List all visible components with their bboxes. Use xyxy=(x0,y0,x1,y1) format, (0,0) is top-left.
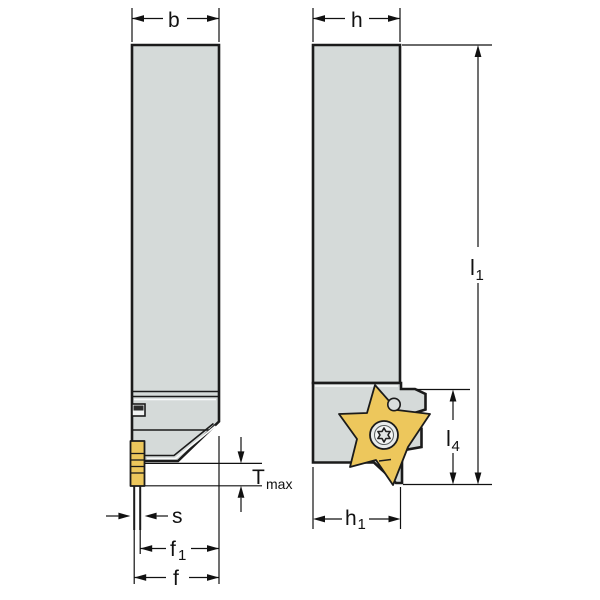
dim-label-h1-sub: 1 xyxy=(358,516,366,533)
dim-label-tmax: T xyxy=(252,466,265,489)
b-arrow-left xyxy=(132,15,144,22)
b-arrow-right xyxy=(207,15,219,22)
dim-label-l4-sub: 4 xyxy=(452,438,460,455)
side-shank-body xyxy=(313,45,400,383)
s-arrow-right xyxy=(145,513,157,520)
dim-label-f1-sub: 1 xyxy=(178,547,186,564)
h-arrow-right xyxy=(388,15,400,22)
dim-label-h: h xyxy=(351,9,363,32)
l1-arrow-up xyxy=(475,45,482,57)
f1-arrow-left xyxy=(140,545,152,552)
h-arrow-left xyxy=(313,15,325,22)
l4-arrow-down xyxy=(450,473,457,485)
dim-label-l1: l xyxy=(470,255,475,280)
dimension-h: h xyxy=(313,8,400,42)
dim-label-s: s xyxy=(172,505,183,528)
dim-label-f1: f xyxy=(170,538,176,561)
tool-holder-drawing: b h T max s f 1 xyxy=(0,0,600,600)
h1-arrow-right xyxy=(389,516,401,523)
l4-arrow-up xyxy=(450,390,457,402)
tmax-arrow-up xyxy=(238,486,245,498)
front-view xyxy=(131,45,220,530)
tmax-arrow-down xyxy=(238,451,245,463)
dimension-s: s xyxy=(106,505,183,528)
clamp-pin xyxy=(388,398,400,410)
dimension-b: b xyxy=(132,8,219,42)
dim-label-tmax-sub: max xyxy=(266,476,292,492)
dim-label-b: b xyxy=(168,9,180,32)
s-arrow-left xyxy=(118,513,130,520)
h1-arrow-left xyxy=(313,516,325,523)
side-view xyxy=(313,45,430,485)
l1-arrow-down xyxy=(475,473,482,485)
dim-label-l4: l xyxy=(446,426,451,451)
f-arrow-left xyxy=(134,574,146,581)
dim-label-f: f xyxy=(173,567,179,590)
f-arrow-right xyxy=(207,574,219,581)
front-shank-body xyxy=(132,45,219,461)
front-clamp-slot-shadow xyxy=(134,406,144,411)
dim-label-h1: h xyxy=(345,507,357,530)
dimension-f1: f 1 xyxy=(140,530,219,564)
dim-label-l1-sub: 1 xyxy=(476,267,484,284)
f1-arrow-right xyxy=(207,545,219,552)
technical-drawing-canvas: b h T max s f 1 xyxy=(0,0,600,600)
front-insert xyxy=(131,441,145,486)
